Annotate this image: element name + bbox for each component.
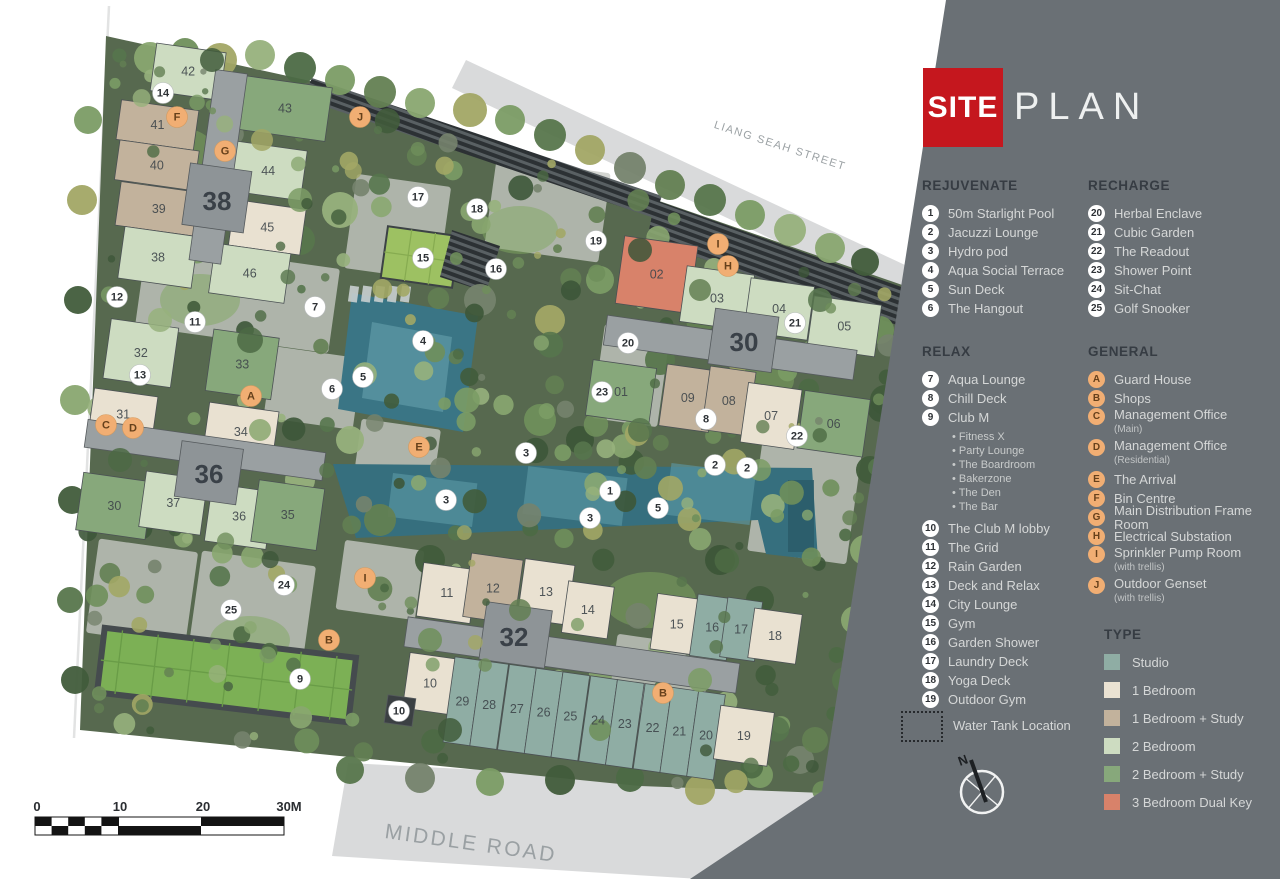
legend-marker-17: 17 <box>922 653 939 670</box>
type-label: 1 Bedroom + Study <box>1132 711 1244 726</box>
legend-item: AGuard House <box>1088 370 1263 389</box>
unit-label: 45 <box>260 220 274 234</box>
legend-item-label: Electrical Substation <box>1114 530 1232 544</box>
legend-marker-20: 20 <box>1088 205 1105 222</box>
legend-item-label: Main Distribution Frame Room <box>1114 504 1263 532</box>
legend-item: 18Yoga Deck <box>922 671 1097 690</box>
unit-label: 16 <box>705 620 719 634</box>
map-marker-21: 21 <box>785 313 806 334</box>
compass-north-label: N <box>956 752 970 769</box>
legend-item: JOutdoor Genset(with trellis) <box>1088 577 1263 608</box>
legend-item-label: The Grid <box>948 541 999 555</box>
map-marker-15: 15 <box>413 248 434 269</box>
svg-text:20: 20 <box>196 799 210 814</box>
unit-label: 35 <box>281 508 295 522</box>
map-marker-J: J <box>350 107 371 128</box>
svg-text:9: 9 <box>297 674 303 686</box>
svg-text:4: 4 <box>420 336 427 348</box>
legend-marker-16: 16 <box>922 634 939 651</box>
map-marker-17: 17 <box>408 187 429 208</box>
svg-text:17: 17 <box>412 192 424 204</box>
map-marker-2: 2 <box>737 458 758 479</box>
legend-item-label: Outdoor Genset(with trellis) <box>1114 577 1207 606</box>
legend-marker-15: 15 <box>922 615 939 632</box>
svg-text:D: D <box>129 423 137 435</box>
svg-text:E: E <box>415 442 422 454</box>
legend-item-label: Rain Garden <box>948 560 1022 574</box>
legend-marker-25: 25 <box>1088 300 1105 317</box>
legend-item-label: Aqua Lounge <box>948 373 1025 387</box>
svg-text:24: 24 <box>278 580 291 592</box>
type-label: 3 Bedroom Dual Key <box>1132 795 1252 810</box>
legend-item: 150m Starlight Pool <box>922 204 1097 223</box>
water-tank-label: Water Tank Location <box>953 718 1071 733</box>
section-heading-general: GENERAL <box>1088 344 1263 357</box>
legend-item-label: The Club M lobby <box>948 522 1050 536</box>
legend-marker-22: 22 <box>1088 243 1105 260</box>
legend-marker-G: G <box>1088 509 1105 526</box>
legend-item-label: Sit-Chat <box>1114 283 1161 297</box>
map-marker-18: 18 <box>467 199 488 220</box>
legend-item-label: Cubic Garden <box>1114 226 1194 240</box>
legend-marker-F: F <box>1088 490 1105 507</box>
map-marker-10: 10 <box>389 701 410 722</box>
unit-label: 17 <box>734 622 748 636</box>
legend-item-label: Guard House <box>1114 373 1191 387</box>
section-heading-rejuvenate: REJUVENATE <box>922 178 1097 191</box>
map-marker-4: 4 <box>413 331 434 352</box>
svg-text:30M: 30M <box>276 799 301 814</box>
section-heading-relax: RELAX <box>922 344 1097 357</box>
legend-sub-item: • The Bar <box>922 500 1097 514</box>
map-marker-14: 14 <box>153 83 174 104</box>
unit-label: 18 <box>768 629 782 643</box>
water-tank-legend: Water Tank Location <box>901 711 1071 742</box>
svg-text:J: J <box>357 112 363 124</box>
title-site-box: SITE <box>923 68 1003 147</box>
legend-sub-item: • Party Lounge <box>922 444 1097 458</box>
map-marker-12: 12 <box>107 287 128 308</box>
unit-label: 03 <box>710 291 724 305</box>
unit-label: 24 <box>591 713 605 727</box>
unit-label: 41 <box>151 118 165 132</box>
legend-item-label: Outdoor Gym <box>948 693 1026 707</box>
map-marker-19: 19 <box>586 231 607 252</box>
legend-item-label: 50m Starlight Pool <box>948 207 1054 221</box>
svg-text:I: I <box>363 573 366 585</box>
map-marker-5: 5 <box>353 367 374 388</box>
svg-text:23: 23 <box>596 387 608 399</box>
legend-item-label: Herbal Enclave <box>1114 207 1202 221</box>
type-legend-item: 2 Bedroom + Study <box>1104 760 1279 788</box>
legend-marker-19: 19 <box>922 691 939 708</box>
unit-label: 25 <box>563 709 577 723</box>
type-swatch <box>1104 794 1120 810</box>
legend-marker-D: D <box>1088 439 1105 456</box>
legend-item: 22The Readout <box>1088 242 1263 261</box>
scale-bar: 0102030M <box>33 799 301 835</box>
water-tank-swatch <box>901 711 943 742</box>
type-swatch <box>1104 710 1120 726</box>
unit-label: 13 <box>539 585 553 599</box>
legend-item-note: (with trellis) <box>1114 561 1241 575</box>
svg-text:3: 3 <box>587 513 593 525</box>
svg-text:0: 0 <box>33 799 40 814</box>
map-marker-1: 1 <box>600 481 621 502</box>
svg-text:20: 20 <box>622 338 634 350</box>
legend-item-note: (with trellis) <box>1114 592 1207 606</box>
block-number-38: 38 <box>203 186 232 216</box>
unit-label: 19 <box>737 729 751 743</box>
unit-label: 29 <box>455 694 469 708</box>
legend-item-label: Management Office(Main) <box>1114 408 1227 437</box>
svg-text:19: 19 <box>590 236 602 248</box>
unit-label: 11 <box>440 586 453 600</box>
unit-label: 02 <box>650 268 664 282</box>
unit-label: 46 <box>243 266 257 280</box>
legend-item: 17Laundry Deck <box>922 652 1097 671</box>
map-marker-F: F <box>167 107 188 128</box>
legend-marker-A: A <box>1088 371 1105 388</box>
legend-marker-C: C <box>1088 408 1105 425</box>
map-marker-3: 3 <box>436 490 457 511</box>
title-site: SITE <box>928 91 999 125</box>
legend-item: 19Outdoor Gym <box>922 690 1097 709</box>
unit-label: 42 <box>181 65 195 79</box>
unit-label: 08 <box>722 394 736 408</box>
unit-label: 30 <box>107 499 121 513</box>
svg-text:G: G <box>221 146 230 158</box>
legend-item-note: (Residential) <box>1114 454 1227 468</box>
svg-text:B: B <box>325 635 333 647</box>
map-marker-2: 2 <box>705 455 726 476</box>
legend-marker-21: 21 <box>1088 224 1105 241</box>
svg-text:7: 7 <box>312 302 318 314</box>
unit-label: 07 <box>764 409 778 423</box>
legend-item: 24Sit-Chat <box>1088 280 1263 299</box>
map-marker-20: 20 <box>618 333 639 354</box>
type-label: 1 Bedroom <box>1132 683 1196 698</box>
legend-item: 3Hydro pod <box>922 242 1097 261</box>
map-marker-9: 9 <box>290 669 311 690</box>
legend-item-label: Deck and Relax <box>948 579 1040 593</box>
legend-marker-B: B <box>1088 390 1105 407</box>
unit-label: 12 <box>486 581 500 595</box>
type-swatch <box>1104 766 1120 782</box>
legend-item-label: The Readout <box>1114 245 1189 259</box>
legend-item: 25Golf Snooker <box>1088 299 1263 318</box>
legend-marker-5: 5 <box>922 281 939 298</box>
unit-label: 21 <box>672 725 686 739</box>
svg-text:13: 13 <box>134 370 146 382</box>
type-swatch <box>1104 654 1120 670</box>
legend-item: 12Rain Garden <box>922 557 1097 576</box>
legend-marker-J: J <box>1088 577 1105 594</box>
legend-item-label: City Lounge <box>948 598 1017 612</box>
unit-label: 40 <box>150 158 164 172</box>
map-marker-22: 22 <box>787 426 808 447</box>
map-marker-G: G <box>215 141 236 162</box>
legend-item: 5Sun Deck <box>922 280 1097 299</box>
type-legend-item: 1 Bedroom + Study <box>1104 704 1279 732</box>
legend-sub-item: • The Den <box>922 486 1097 500</box>
legend-item-label: Chill Deck <box>948 392 1007 406</box>
legend-marker-2: 2 <box>922 224 939 241</box>
legend-item-label: Laundry Deck <box>948 655 1028 669</box>
svg-text:11: 11 <box>189 317 201 329</box>
legend-sub-item: • The Boardroom <box>922 458 1097 472</box>
block-number-30: 30 <box>730 327 759 357</box>
unit-label: 39 <box>152 202 166 216</box>
legend-sub-item: • Fitness X <box>922 430 1097 444</box>
legend-item: GMain Distribution Frame Room <box>1088 508 1263 527</box>
legend-item-label: Club M <box>948 411 989 425</box>
legend-item: 9Club M <box>922 408 1097 427</box>
svg-text:A: A <box>247 391 255 403</box>
unit-label: 37 <box>166 496 180 510</box>
map-marker-3: 3 <box>516 443 537 464</box>
map-marker-5: 5 <box>648 498 669 519</box>
legend-marker-1: 1 <box>922 205 939 222</box>
map-marker-23: 23 <box>592 382 613 403</box>
legend-item: 4Aqua Social Terrace <box>922 261 1097 280</box>
svg-text:B: B <box>659 688 667 700</box>
legend-item: 8Chill Deck <box>922 389 1097 408</box>
legend-item: 10The Club M lobby <box>922 519 1097 538</box>
unit-label: 44 <box>261 164 275 178</box>
legend-item-label: Shower Point <box>1114 264 1191 278</box>
legend-marker-9: 9 <box>922 409 939 426</box>
type-legend-item: 2 Bedroom <box>1104 732 1279 760</box>
block-number-32: 32 <box>500 622 529 652</box>
svg-text:5: 5 <box>360 372 366 384</box>
unit-label: 36 <box>232 509 246 523</box>
title-plan: PLAN <box>1014 68 1149 147</box>
map-marker-H: H <box>718 256 739 277</box>
unit-label: 04 <box>772 302 786 316</box>
legend-item: 23Shower Point <box>1088 261 1263 280</box>
unit-label: 38 <box>151 250 165 264</box>
legend-item-label: Hydro pod <box>948 245 1008 259</box>
site-plan-page: 4241403938434445463832333134303736353602… <box>0 0 1280 879</box>
legend-marker-6: 6 <box>922 300 939 317</box>
unit-label: 23 <box>618 717 632 731</box>
section-heading-type: TYPE <box>1104 627 1279 640</box>
svg-text:10: 10 <box>393 706 405 718</box>
unit-label: 01 <box>614 385 628 399</box>
section-heading-recharge: RECHARGE <box>1088 178 1263 191</box>
svg-text:H: H <box>724 261 732 273</box>
legend-marker-24: 24 <box>1088 281 1105 298</box>
legend-marker-13: 13 <box>922 577 939 594</box>
map-marker-24: 24 <box>274 575 295 596</box>
legend-item-label: Shops <box>1114 392 1151 406</box>
unit-label: 14 <box>581 603 595 617</box>
legend-marker-14: 14 <box>922 596 939 613</box>
type-legend-item: 1 Bedroom <box>1104 676 1279 704</box>
legend-marker-7: 7 <box>922 371 939 388</box>
legend-sub-item: • Bakerzone <box>922 472 1097 486</box>
legend-marker-E: E <box>1088 471 1105 488</box>
type-legend-item: Studio <box>1104 648 1279 676</box>
map-marker-A: A <box>241 386 262 407</box>
street-label: LIANG SEAH STREET <box>712 119 847 173</box>
legend-item: BShops <box>1088 389 1263 408</box>
unit-label: 43 <box>278 102 292 116</box>
legend-item: ISprinkler Pump Room(with trellis) <box>1088 546 1263 577</box>
legend-item-label: The Arrival <box>1114 473 1176 487</box>
map-marker-I: I <box>708 234 729 255</box>
type-swatch <box>1104 738 1120 754</box>
map-marker-6: 6 <box>322 379 343 400</box>
legend-item: 13Deck and Relax <box>922 576 1097 595</box>
unit-label: 34 <box>234 425 248 439</box>
type-legend-item: 3 Bedroom Dual Key <box>1104 788 1279 816</box>
legend-item-label: Sprinkler Pump Room(with trellis) <box>1114 546 1241 575</box>
map-marker-B: B <box>319 630 340 651</box>
legend-item-label: Golf Snooker <box>1114 302 1190 316</box>
legend-marker-23: 23 <box>1088 262 1105 279</box>
svg-text:C: C <box>102 420 110 432</box>
unit-label: 32 <box>134 346 148 360</box>
legend-item-label: Yoga Deck <box>948 674 1010 688</box>
svg-text:3: 3 <box>443 495 449 507</box>
svg-text:3: 3 <box>523 448 529 460</box>
legend-item: 6The Hangout <box>922 299 1097 318</box>
unit-label: 10 <box>423 677 437 691</box>
svg-text:2: 2 <box>744 463 750 475</box>
legend-item-label: Garden Shower <box>948 636 1039 650</box>
unit-label: 28 <box>482 698 496 712</box>
map-marker-16: 16 <box>486 259 507 280</box>
map-marker-25: 25 <box>221 600 242 621</box>
legend-item-note: (Main) <box>1114 423 1227 437</box>
unit-label: 27 <box>510 702 524 716</box>
legend-item-label: Jacuzzi Lounge <box>948 226 1038 240</box>
map-marker-B: B <box>653 683 674 704</box>
svg-text:2: 2 <box>712 460 718 472</box>
legend-section-relax: RELAX 7Aqua Lounge8Chill Deck9Club M• Fi… <box>922 344 1097 709</box>
svg-text:21: 21 <box>789 318 801 330</box>
map-marker-8: 8 <box>696 409 717 430</box>
type-label: Studio <box>1132 655 1169 670</box>
svg-text:15: 15 <box>417 253 429 265</box>
svg-text:22: 22 <box>791 431 803 443</box>
legend-marker-I: I <box>1088 546 1105 563</box>
legend-item: CManagement Office(Main) <box>1088 408 1263 439</box>
legend-item: 15Gym <box>922 614 1097 633</box>
type-swatch <box>1104 682 1120 698</box>
legend-item-label: The Hangout <box>948 302 1023 316</box>
legend-item: 16Garden Shower <box>922 633 1097 652</box>
legend-marker-4: 4 <box>922 262 939 279</box>
unit-label: 20 <box>699 728 713 742</box>
legend-item: 21Cubic Garden <box>1088 223 1263 242</box>
svg-text:5: 5 <box>655 503 661 515</box>
legend-marker-H: H <box>1088 528 1105 545</box>
map-marker-3: 3 <box>580 508 601 529</box>
unit-label: 06 <box>827 417 841 431</box>
legend-item: 11The Grid <box>922 538 1097 557</box>
map-marker-E: E <box>409 437 430 458</box>
svg-text:F: F <box>174 112 181 124</box>
type-label: 2 Bedroom + Study <box>1132 767 1244 782</box>
map-marker-7: 7 <box>305 297 326 318</box>
compass: N <box>942 750 1020 830</box>
svg-text:6: 6 <box>329 384 335 396</box>
legend-item-label: Gym <box>948 617 975 631</box>
legend-item-label: Sun Deck <box>948 283 1004 297</box>
svg-text:8: 8 <box>703 414 709 426</box>
legend-item: 20Herbal Enclave <box>1088 204 1263 223</box>
svg-text:16: 16 <box>490 264 502 276</box>
unit-label: 26 <box>537 706 551 720</box>
legend-section-recharge: RECHARGE 20Herbal Enclave21Cubic Garden2… <box>1088 178 1263 318</box>
svg-text:25: 25 <box>225 605 237 617</box>
legend-item: 7Aqua Lounge <box>922 370 1097 389</box>
svg-text:14: 14 <box>157 88 170 100</box>
svg-text:I: I <box>716 239 719 251</box>
legend-item-label: Management Office(Residential) <box>1114 439 1227 468</box>
legend-item: 2Jacuzzi Lounge <box>922 223 1097 242</box>
legend-item: 14City Lounge <box>922 595 1097 614</box>
type-label: 2 Bedroom <box>1132 739 1196 754</box>
legend-section-general: GENERAL AGuard HouseBShopsCManagement Of… <box>1088 344 1263 608</box>
svg-text:10: 10 <box>113 799 127 814</box>
legend-section-type: TYPE Studio1 Bedroom1 Bedroom + Study2 B… <box>1104 627 1279 816</box>
legend-item-label: Aqua Social Terrace <box>948 264 1064 278</box>
unit-label: 33 <box>235 357 249 371</box>
unit-label: 09 <box>681 391 695 405</box>
map-marker-13: 13 <box>130 365 151 386</box>
svg-text:1: 1 <box>607 486 613 498</box>
legend-marker-18: 18 <box>922 672 939 689</box>
map-marker-I: I <box>355 568 376 589</box>
unit-label: 15 <box>670 617 684 631</box>
unit-label: 05 <box>837 319 851 333</box>
unit-label: 22 <box>646 721 660 735</box>
legend-section-rejuvenate: REJUVENATE 150m Starlight Pool2Jacuzzi L… <box>922 178 1097 318</box>
block-number-36: 36 <box>195 459 224 489</box>
legend-item: EThe Arrival <box>1088 470 1263 489</box>
legend-marker-11: 11 <box>922 539 939 556</box>
legend-marker-10: 10 <box>922 520 939 537</box>
svg-text:12: 12 <box>111 292 123 304</box>
legend-marker-12: 12 <box>922 558 939 575</box>
legend-item: DManagement Office(Residential) <box>1088 439 1263 470</box>
svg-text:18: 18 <box>471 204 483 216</box>
legend-marker-8: 8 <box>922 390 939 407</box>
map-marker-C: C <box>96 415 117 436</box>
map-marker-D: D <box>123 418 144 439</box>
legend-marker-3: 3 <box>922 243 939 260</box>
map-marker-11: 11 <box>185 312 206 333</box>
